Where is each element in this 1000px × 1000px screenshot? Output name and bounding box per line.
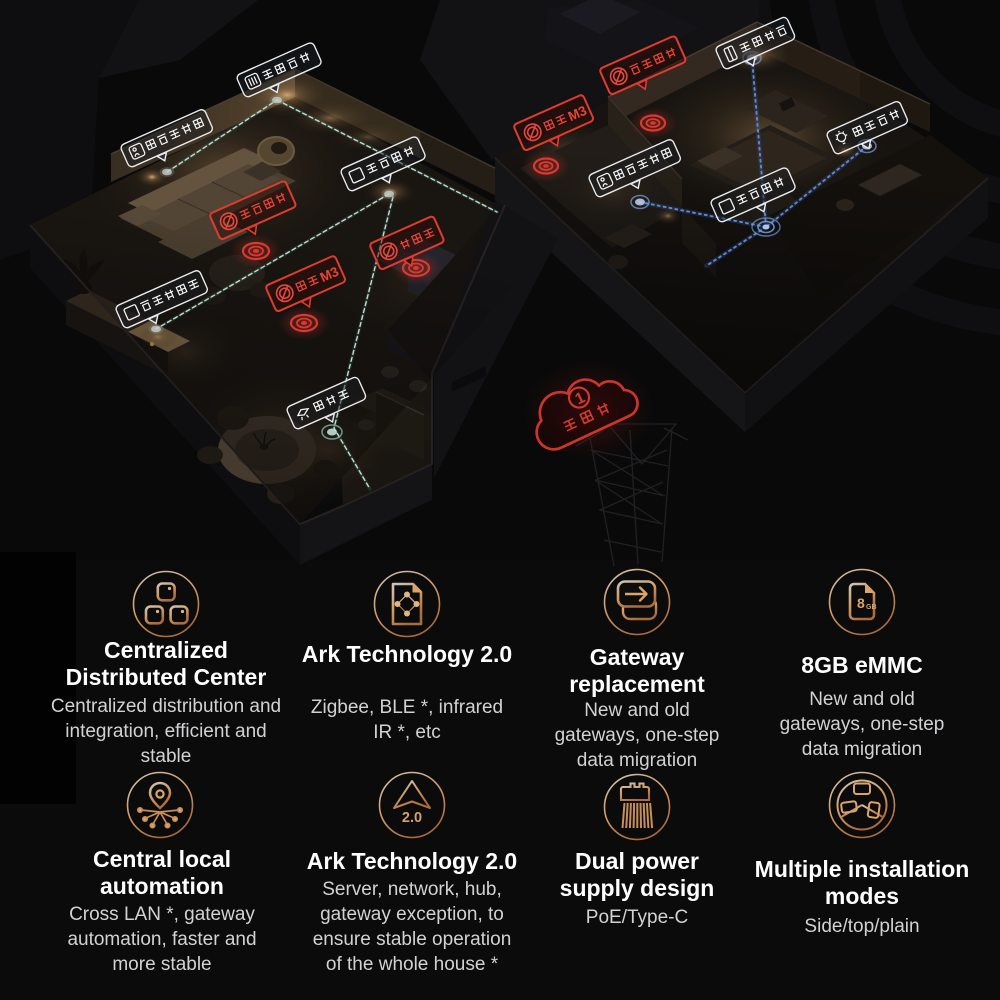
svg-text:2.0: 2.0 xyxy=(402,810,422,826)
svg-text:GB: GB xyxy=(866,604,877,611)
svg-text:8: 8 xyxy=(857,595,865,611)
